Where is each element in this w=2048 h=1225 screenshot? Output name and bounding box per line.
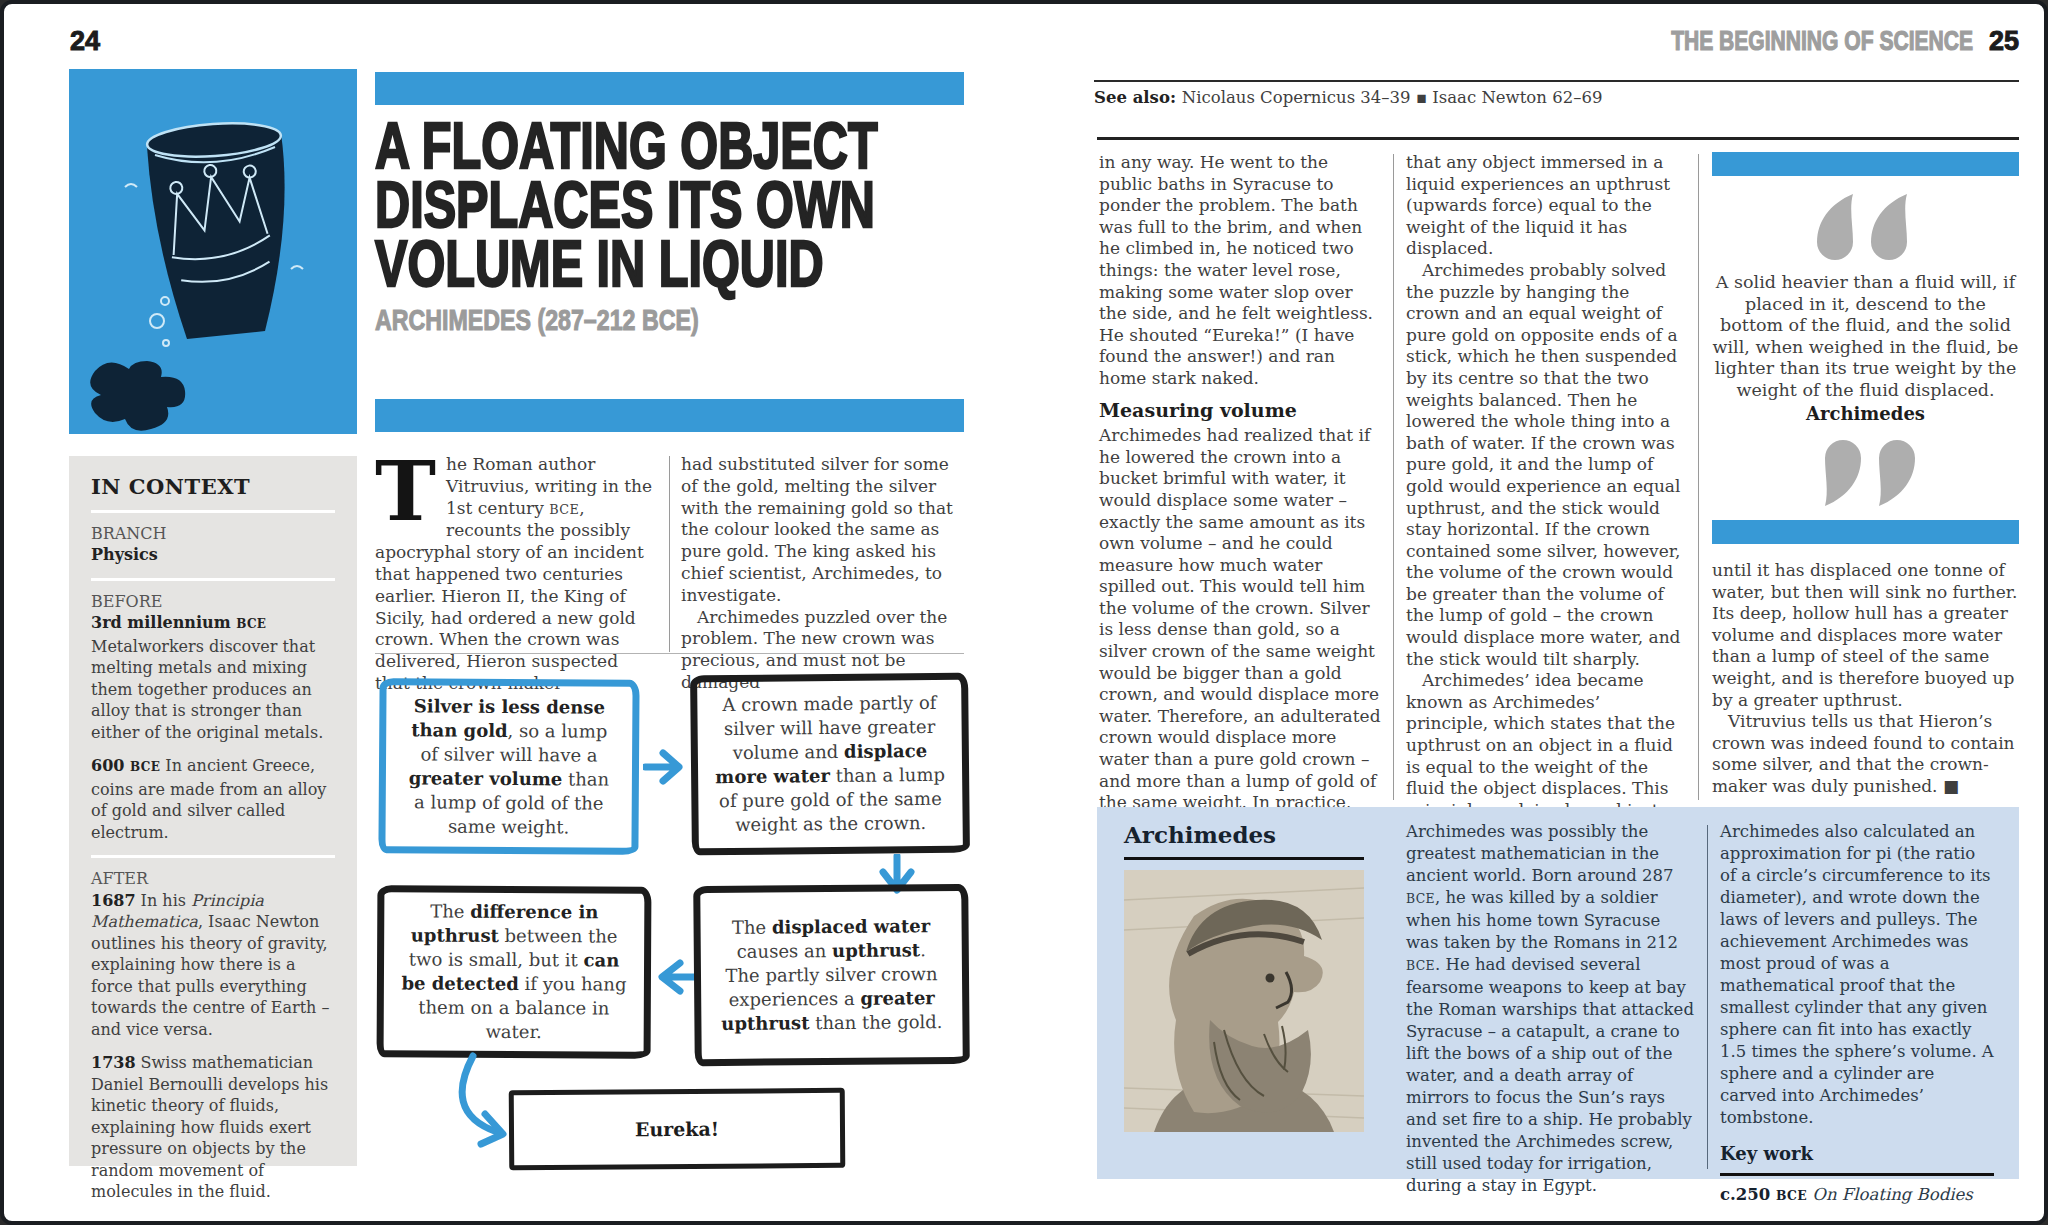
in-context-sidebar: IN CONTEXT BRANCH Physics BEFORE 3rd mil…	[69, 456, 357, 1166]
intro-paragraph: had substituted silver for some of the g…	[681, 454, 964, 607]
quote-top-bar	[1712, 152, 2019, 176]
headline-line-1: A FLOATING OBJECT	[375, 117, 878, 176]
in-context-heading: IN CONTEXT	[91, 476, 335, 498]
article-subtitle: ARCHIMEDES (287–212 BCE)	[375, 304, 964, 337]
intro-text: The Roman author Vitruvius, writing in t…	[375, 454, 964, 652]
before-label: BEFORE	[91, 591, 335, 613]
chapter-title: THE BEGINNING OF SCIENCE	[1586, 26, 1973, 57]
headline-line-3: VOLUME IN LIQUID	[375, 235, 824, 294]
quote-text: A solid heavier than a fluid will, if pl…	[1712, 272, 2019, 401]
article-title-block: A FLOATING OBJECT DISPLACES ITS OWN VOLU…	[375, 72, 964, 337]
intro-column-2: had substituted silver for some of the g…	[681, 454, 964, 652]
sidebar-divider	[91, 510, 335, 513]
biography-portrait-column: Archimedes	[1124, 821, 1364, 1179]
article-headline: A FLOATING OBJECT DISPLACES ITS OWN VOLU…	[375, 117, 964, 294]
flowchart-box-text: The displaced water causes an upthrust. …	[716, 914, 946, 1036]
open-quote-icon	[1811, 192, 1921, 266]
after-item: 1687 In his Principia Mathematica, Isaac…	[91, 890, 335, 1041]
flowchart-box-text: A crown made partly of silver will have …	[713, 691, 946, 837]
before-item: 600 BCE In ancient Greece, coins are mad…	[91, 755, 335, 843]
key-work-value: c.250 BCE On Floating Bodies	[1720, 1184, 1994, 1207]
quote-attribution: Archimedes	[1712, 403, 2019, 424]
running-head: THE BEGINNING OF SCIENCE 25	[1094, 26, 2019, 57]
quote-panel: A solid heavier than a fluid will, if pl…	[1712, 152, 2019, 798]
sidebar-divider	[91, 578, 335, 581]
flowchart-box-crown-volume: A crown made partly of silver will have …	[690, 673, 970, 856]
flowchart-box-eureka: Eureka!	[509, 1088, 846, 1170]
title-bottom-bar	[375, 399, 964, 432]
biography-paragraph: Archimedes also calculated an approximat…	[1720, 822, 1994, 1127]
biography-text-column-1: Archimedes was possibly the greatest mat…	[1406, 821, 1694, 1179]
headline-line-2: DISPLACES ITS OWN	[375, 176, 875, 235]
branch-value: Physics	[91, 544, 335, 566]
close-quote-icon	[1811, 434, 1921, 508]
quote-bottom-bar	[1712, 520, 2019, 544]
page-number-right: 25	[1989, 26, 2019, 57]
biography-paragraph: Archimedes was possibly the greatest mat…	[1406, 822, 1694, 1195]
flowchart-box-text: The difference in upthrust between the t…	[400, 899, 629, 1044]
body-paragraph: that any object immersed in a liquid exp…	[1406, 152, 1687, 260]
column-divider	[669, 456, 670, 652]
body-paragraph: in any way. He went to the public baths …	[1099, 152, 1382, 390]
drop-cap: T	[375, 460, 436, 522]
key-work-label: Key work	[1720, 1129, 1994, 1176]
body-paragraph: until it has displaced one tonne of wate…	[1712, 560, 2019, 711]
flowchart-top-rule	[375, 653, 964, 654]
before-item: 3rd millennium BCE Metalworkers discover…	[91, 612, 335, 743]
body-column-3: until it has displaced one tonne of wate…	[1712, 560, 2019, 798]
flowchart-box-difference-upthrust: The difference in upthrust between the t…	[377, 885, 652, 1058]
title-top-bar	[375, 72, 964, 105]
page-number-left: 24	[70, 26, 100, 57]
after-item: 1738 Swiss mathematician Daniel Bernoull…	[91, 1052, 335, 1203]
flow-arrow-left-icon	[656, 959, 696, 995]
branch-label: BRANCH	[91, 523, 335, 545]
flowchart-diagram: Silver is less dense than gold, so a lum…	[375, 664, 975, 1179]
flowchart-box-displaced-water: The displaced water causes an upthrust. …	[693, 884, 970, 1066]
biography-text-column-2: Archimedes also calculated an approximat…	[1720, 821, 1994, 1179]
flowchart-box-text: Silver is less dense than gold, so a lum…	[401, 694, 616, 839]
biography-column-divider	[1707, 825, 1708, 1169]
flow-arrow-right-icon	[643, 746, 689, 788]
section-heading: Measuring volume	[1099, 400, 1382, 422]
archimedes-portrait-image	[1124, 870, 1364, 1132]
biography-box: Archimedes Archimedes was pos	[1097, 807, 2019, 1179]
body-paragraph: Vitruvius tells us that Hieron’s crown w…	[1712, 711, 2019, 797]
after-label: AFTER	[91, 868, 335, 890]
sidebar-divider	[91, 855, 335, 858]
crown-cup-icon	[69, 69, 357, 434]
columns-top-rule	[1097, 137, 2019, 140]
intro-column-1: The Roman author Vitruvius, writing in t…	[375, 454, 658, 652]
crown-in-water-illustration	[69, 69, 357, 434]
biography-title: Archimedes	[1124, 821, 1364, 860]
body-column-1: in any way. He went to the public baths …	[1099, 152, 1382, 900]
body-paragraph: Archimedes probably solved the puzzle by…	[1406, 260, 1687, 670]
header-rule	[1094, 80, 2019, 82]
body-column-2: that any object immersed in a liquid exp…	[1406, 152, 1687, 886]
column-divider	[1393, 154, 1394, 800]
see-also-line: See also: Nicolaus Copernicus 34–39 ▪ Is…	[1094, 88, 2019, 107]
book-spread: 24 A FLOATIN	[0, 0, 2048, 1225]
eureka-label: Eureka!	[635, 1117, 719, 1142]
column-divider	[1698, 154, 1699, 800]
flowchart-box-silver-density: Silver is less dense than gold, so a lum…	[378, 678, 639, 855]
